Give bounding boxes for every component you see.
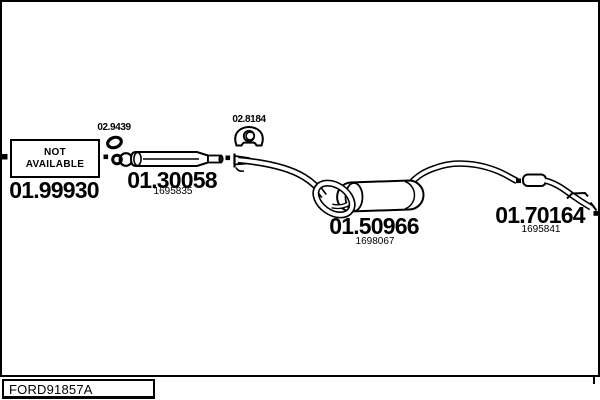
not-available-line1: NOT	[44, 147, 66, 159]
catalog-code: FORD91857A	[9, 382, 93, 397]
part-ref-centre-silencer: 1695835	[154, 186, 193, 197]
flange-gasket-icon	[235, 127, 263, 145]
part-number-clamp-ring: 02.9439	[97, 122, 130, 133]
part-ref-rear-silencer: 1698067	[356, 236, 395, 247]
tailpipe-sleeve	[523, 175, 546, 187]
clamp-ring-icon	[106, 136, 122, 150]
rear-pipe-outline	[238, 160, 324, 196]
part-number-front-pipe: 01.99930	[9, 177, 99, 204]
drawing-frame: NOT AVAILABLE 02.9439 02.8184 01.99930 0…	[0, 0, 600, 377]
exhaust-diagram-page: NOT AVAILABLE 02.9439 02.8184 01.99930 0…	[0, 0, 600, 400]
not-available-box: NOT AVAILABLE	[10, 139, 100, 178]
part-number-flange-gasket: 02.8184	[232, 114, 265, 125]
clamp-marker-icon	[516, 179, 521, 184]
clamp-marker-icon	[594, 211, 599, 216]
clamp-marker-icon	[104, 155, 109, 160]
hanger-hook	[236, 168, 244, 172]
clamp-marker-icon	[2, 154, 8, 160]
part-ref-tail-pipe: 1695841	[522, 224, 561, 235]
frame-edge-tick	[593, 377, 595, 384]
clamp-marker-icon	[226, 156, 231, 161]
catalog-code-box: FORD91857A	[2, 379, 155, 399]
not-available-line2: AVAILABLE	[26, 159, 84, 171]
